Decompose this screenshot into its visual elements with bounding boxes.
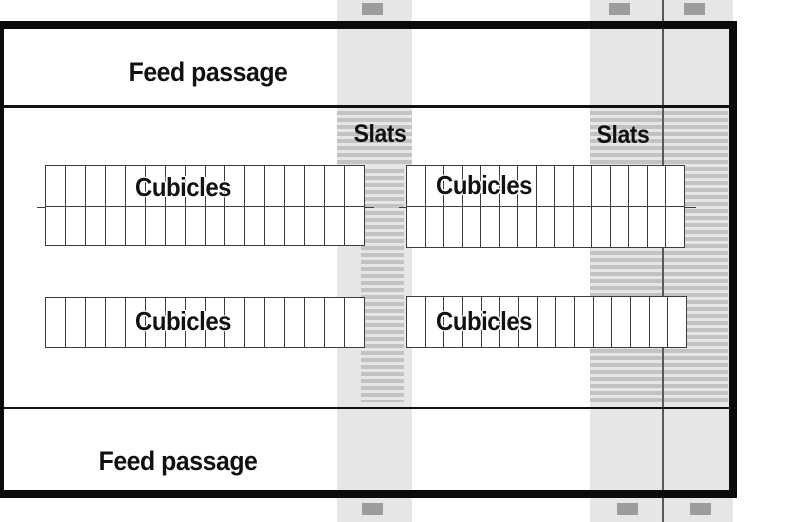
- cubicle-cell: [245, 298, 264, 347]
- cubicle-cell: [407, 297, 425, 347]
- cubicles-bottom-right-label: Cubicles: [436, 308, 528, 334]
- cubicle-cell: [325, 166, 344, 206]
- cubicle-cell: [325, 207, 344, 245]
- cubicle-cell: [325, 298, 344, 347]
- slats-left-label: Slats: [334, 122, 426, 147]
- cubicle-cell: [631, 297, 649, 347]
- cubicle-cell: [86, 207, 105, 245]
- cubicle-cell: [481, 207, 499, 247]
- cubicle-cell: [611, 166, 629, 206]
- cubicle-cell: [426, 207, 444, 247]
- cubicle-cell: [86, 298, 105, 347]
- cubicle-cell: [592, 207, 610, 247]
- cubicle-cell: [629, 207, 647, 247]
- cubicle-cell: [285, 207, 304, 245]
- cubicle-cell: [265, 166, 284, 206]
- passage-marker-top-1: [362, 3, 383, 15]
- cubicle-cell: [46, 298, 65, 347]
- cubicle-cell: [594, 297, 612, 347]
- cubicles-top-left-label: Cubicles: [135, 174, 227, 200]
- cubicle-cell: [285, 298, 304, 347]
- cubicle-cell: [407, 207, 425, 247]
- passage-marker-top-3: [684, 3, 705, 15]
- cubicle-cell: [106, 298, 125, 347]
- cubicle-cell: [106, 166, 125, 206]
- cubicle-cell: [46, 207, 65, 245]
- cubicle-cell: [146, 207, 165, 245]
- feed-fence-line-top: [4, 105, 729, 108]
- barn-outer-wall: [0, 21, 737, 498]
- cubicle-cell: [648, 166, 666, 206]
- cubicle-cell: [245, 166, 264, 206]
- barn-layout-diagram: Feed passage Feed passage Slats Slats Cu…: [0, 0, 790, 522]
- passage-marker-bottom-3: [690, 503, 711, 515]
- cubicle-cell: [648, 207, 666, 247]
- cubicle-cell: [575, 297, 593, 347]
- slats-right-label: Slats: [577, 123, 669, 148]
- cubicle-cell: [126, 207, 145, 245]
- cubicle-cell: [305, 207, 324, 245]
- cubicle-cell: [407, 166, 425, 206]
- cubicle-cell: [86, 166, 105, 206]
- cubicle-cell: [345, 207, 364, 245]
- cubicle-cell: [225, 207, 244, 245]
- passage-marker-bottom-1: [362, 503, 383, 515]
- cubicle-cell: [612, 297, 630, 347]
- cubicle-cell: [345, 298, 364, 347]
- cubicle-cell: [305, 298, 324, 347]
- cubicle-cell: [537, 166, 555, 206]
- feed-passage-bottom-label: Feed passage: [86, 448, 270, 475]
- cubicle-cell: [666, 166, 684, 206]
- cubicle-cell: [285, 166, 304, 206]
- cubicle-cell: [538, 297, 556, 347]
- passage-marker-bottom-2: [617, 503, 638, 515]
- cubicle-cell: [66, 298, 85, 347]
- cubicle-cell: [666, 207, 684, 247]
- cubicle-cell: [629, 166, 647, 206]
- passage-marker-top-2: [609, 3, 630, 15]
- cubicle-cell: [245, 207, 264, 245]
- cubicle-cell: [668, 297, 686, 347]
- cubicle-cell: [463, 207, 481, 247]
- cubicle-cell: [66, 207, 85, 245]
- cubicle-cell: [265, 207, 284, 245]
- cubicle-cell: [106, 207, 125, 245]
- cubicle-cell: [444, 207, 462, 247]
- cubicle-cell: [592, 166, 610, 206]
- cubicle-cell: [555, 207, 573, 247]
- cubicle-cell: [186, 207, 205, 245]
- cubicle-cell: [574, 207, 592, 247]
- cubicle-cell: [345, 166, 364, 206]
- cubicle-cell: [574, 166, 592, 206]
- cubicle-cell: [555, 166, 573, 206]
- cubicle-cell: [537, 207, 555, 247]
- cubicles-bottom-left-label: Cubicles: [135, 308, 227, 334]
- cubicle-cell: [265, 298, 284, 347]
- cubicle-cell: [66, 166, 85, 206]
- cubicle-cell: [650, 297, 668, 347]
- cubicles-top-right-label: Cubicles: [436, 172, 528, 198]
- feed-passage-top-label: Feed passage: [116, 59, 300, 86]
- cubicle-cell: [556, 297, 574, 347]
- cubicle-cell: [500, 207, 518, 247]
- cubicle-cell: [206, 207, 225, 245]
- cubicle-cell: [166, 207, 185, 245]
- cubicle-cell: [46, 166, 65, 206]
- cubicle-cell: [518, 207, 536, 247]
- cubicle-cell: [305, 166, 324, 206]
- feed-fence-line-bottom: [4, 407, 729, 410]
- cubicle-cell: [611, 207, 629, 247]
